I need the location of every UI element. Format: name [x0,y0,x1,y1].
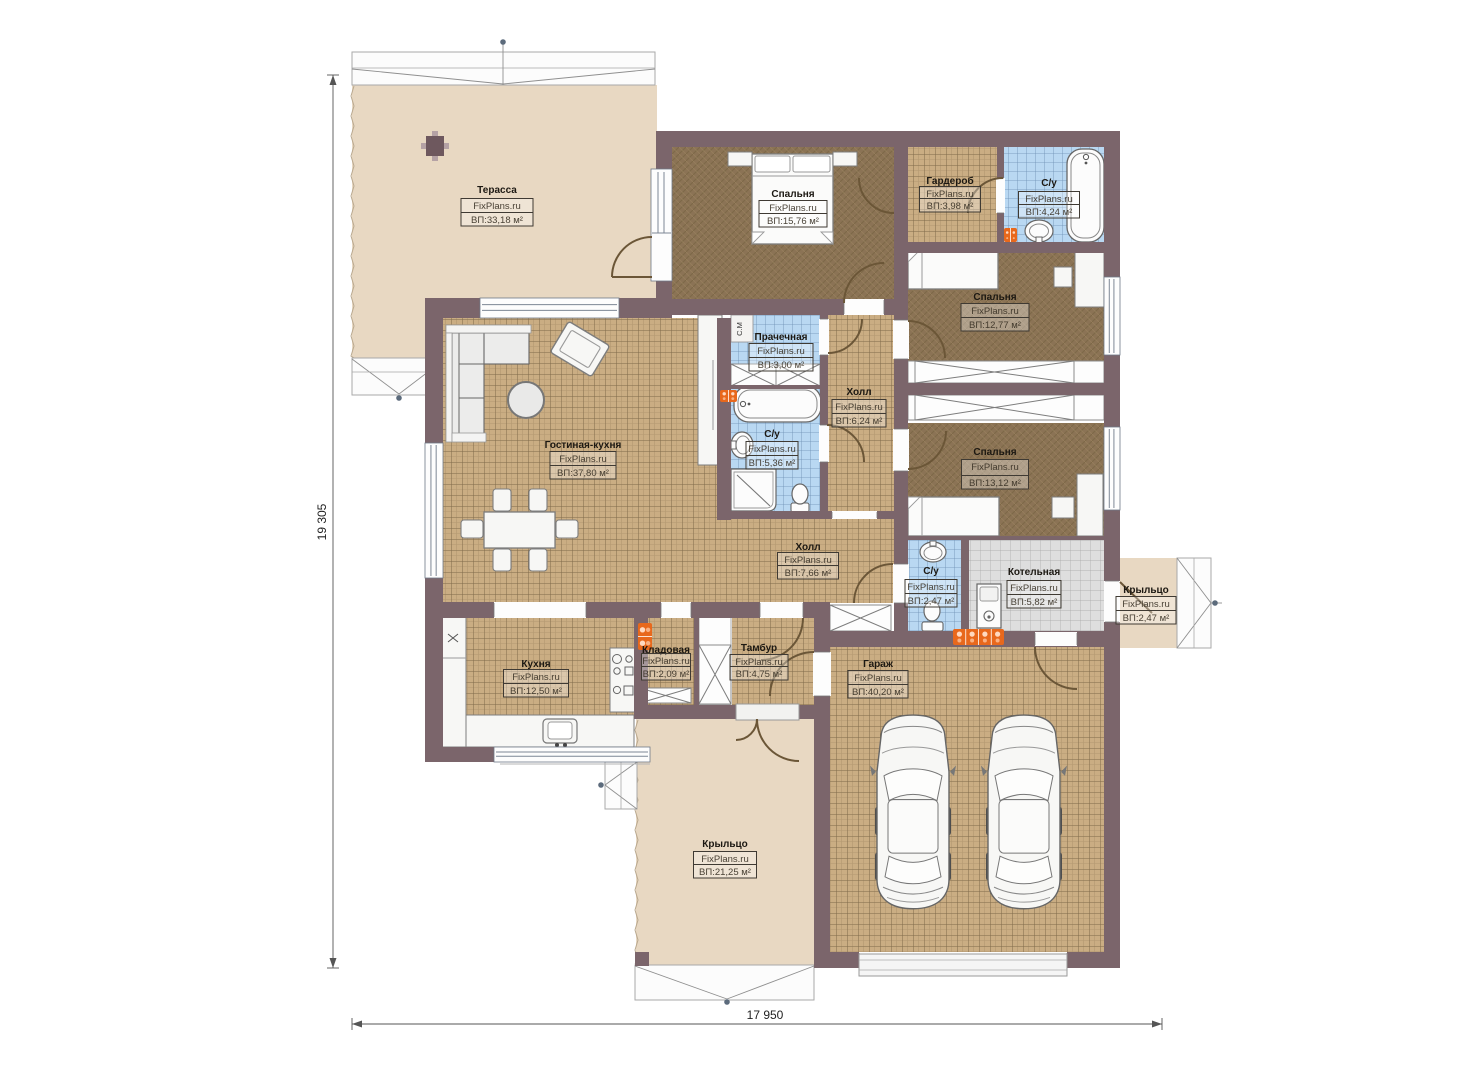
svg-text:С/у: С/у [764,429,780,440]
svg-text:FixPlans.ru: FixPlans.ru [512,672,560,683]
svg-text:С.М: С.М [735,322,744,336]
svg-text:FixPlans.ru: FixPlans.ru [642,656,690,667]
svg-text:Гостиная-кухня: Гостиная-кухня [545,440,622,451]
svg-text:ВП:2,47 м²: ВП:2,47 м² [908,596,955,607]
svg-text:Гараж: Гараж [863,659,894,670]
svg-text:FixPlans.ru: FixPlans.ru [907,582,955,593]
svg-text:ВП:4,75 м²: ВП:4,75 м² [736,669,783,680]
svg-text:ВП:2,09 м²: ВП:2,09 м² [643,669,690,680]
svg-text:FixPlans.ru: FixPlans.ru [1025,194,1073,205]
svg-text:FixPlans.ru: FixPlans.ru [1010,583,1058,594]
svg-text:ВП:15,76 м²: ВП:15,76 м² [767,216,819,227]
svg-text:FixPlans.ru: FixPlans.ru [1122,599,1170,610]
svg-text:Крыльцо: Крыльцо [1123,585,1169,596]
svg-text:Гардероб: Гардероб [926,175,973,187]
svg-text:ВП:7,66 м²: ВП:7,66 м² [785,568,832,579]
svg-text:Тамбур: Тамбур [741,642,777,654]
svg-text:FixPlans.ru: FixPlans.ru [784,555,832,566]
svg-text:Холл: Холл [846,387,871,398]
svg-text:ВП:3,00 м²: ВП:3,00 м² [758,360,805,371]
svg-text:Прачечная: Прачечная [755,332,808,343]
svg-text:ВП:37,80 м²: ВП:37,80 м² [557,468,609,479]
svg-text:FixPlans.ru: FixPlans.ru [835,402,883,413]
svg-text:Крыльцо: Крыльцо [702,839,748,850]
svg-text:Терасса: Терасса [477,185,517,196]
svg-text:FixPlans.ru: FixPlans.ru [854,673,902,684]
svg-text:FixPlans.ru: FixPlans.ru [735,657,783,668]
svg-text:FixPlans.ru: FixPlans.ru [559,454,607,465]
svg-text:FixPlans.ru: FixPlans.ru [769,203,817,214]
svg-text:Кухня: Кухня [521,659,550,670]
svg-text:FixPlans.ru: FixPlans.ru [971,306,1019,317]
svg-text:С/у: С/у [1041,178,1057,189]
svg-text:ВП:33,18 м²: ВП:33,18 м² [471,215,523,226]
svg-text:FixPlans.ru: FixPlans.ru [473,201,521,212]
svg-text:ВП:5,82 м²: ВП:5,82 м² [1011,597,1058,608]
svg-text:Спальня: Спальня [973,292,1016,303]
svg-text:ВП:21,25 м²: ВП:21,25 м² [699,867,751,878]
svg-text:ВП:5,36 м²: ВП:5,36 м² [749,458,796,469]
svg-text:Котельная: Котельная [1008,567,1061,578]
svg-text:FixPlans.ru: FixPlans.ru [971,462,1019,473]
svg-text:ВП:4,24 м²: ВП:4,24 м² [1026,207,1073,218]
svg-text:Холл: Холл [795,542,820,553]
svg-text:Спальня: Спальня [771,189,814,200]
svg-text:ВП:2,47 м²: ВП:2,47 м² [1123,613,1170,624]
svg-text:ВП:6,24 м²: ВП:6,24 м² [836,416,883,427]
svg-text:ВП:12,77 м²: ВП:12,77 м² [969,320,1021,331]
svg-text:17 950: 17 950 [747,1008,784,1022]
svg-text:ВП:40,20 м²: ВП:40,20 м² [852,687,904,698]
svg-text:FixPlans.ru: FixPlans.ru [748,444,796,455]
svg-text:FixPlans.ru: FixPlans.ru [926,189,974,200]
svg-text:19 305: 19 305 [315,503,329,540]
svg-text:ВП:12,50 м²: ВП:12,50 м² [510,686,562,697]
svg-text:ВП:3,98 м²: ВП:3,98 м² [927,201,974,212]
svg-text:Спальня: Спальня [973,447,1016,458]
svg-text:С/у: С/у [923,566,939,577]
svg-text:FixPlans.ru: FixPlans.ru [757,346,805,357]
svg-text:FixPlans.ru: FixPlans.ru [701,854,749,865]
svg-text:ВП:13,12 м²: ВП:13,12 м² [969,478,1021,489]
